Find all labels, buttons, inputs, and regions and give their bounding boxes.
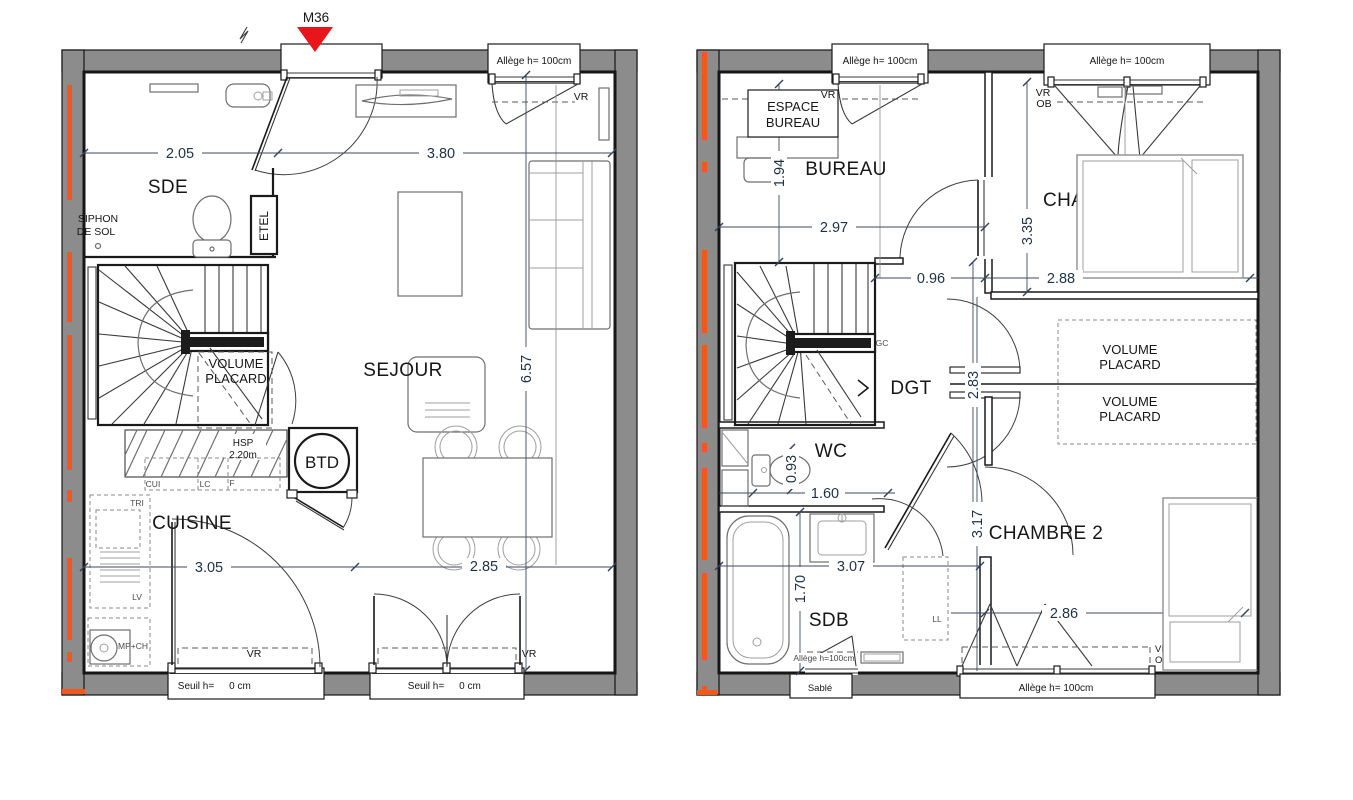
window-bottom-left	[168, 519, 324, 699]
dim-label: 2.88	[1047, 271, 1075, 287]
appliance-label-lc: LC	[200, 479, 211, 489]
placard-label: VOLUME	[209, 356, 264, 371]
appliance-label-f: F	[229, 478, 234, 488]
vr-label: VR	[247, 648, 262, 660]
seuil-label: Seuil h=	[408, 681, 445, 692]
floorplan-page: M36 Allège h= 100cm VR 2.05 3.80 6.57 SD…	[0, 0, 1353, 800]
bed-chambre2	[1163, 498, 1257, 670]
bed-chambre1	[1077, 155, 1243, 278]
placard-label: VOLUME	[1103, 394, 1158, 409]
direction-arrow	[858, 380, 868, 396]
towel-rail	[150, 84, 198, 92]
dim-label: 3.80	[427, 146, 455, 162]
btd-boiler	[255, 352, 357, 530]
ob-label: OB	[1036, 98, 1051, 110]
dim-label: 3.05	[195, 560, 223, 576]
room-label-chambre2: CHAMBRE 2	[989, 523, 1103, 544]
room-label-sdb: SDB	[809, 610, 849, 631]
dining-set	[423, 426, 552, 570]
placard-label: PLACARD	[1099, 409, 1160, 424]
floorplan-canvas: M36 Allège h= 100cm VR 2.05 3.80 6.57 SD…	[0, 0, 1353, 800]
room-label-bureau: BUREAU	[805, 159, 887, 180]
room-label-sde: SDE	[148, 177, 188, 198]
espace-bureau-label: ESPACE	[767, 99, 819, 114]
appliance-label-mpch: MP+CH	[118, 641, 148, 651]
gc-label: GC	[876, 338, 889, 348]
stairs-first	[724, 263, 875, 425]
first-floor-plan: CHAMBRE 1 VR OB 1.94 2.97 3.35 0.96 2.88	[697, 44, 1280, 698]
window-allege-label: Allège h= 100cm	[843, 56, 918, 67]
ground-floor-plan: M36 Allège h= 100cm VR 2.05 3.80 6.57 SD…	[62, 10, 637, 699]
vr-label: VR	[574, 91, 589, 103]
hsp-label: HSP	[233, 438, 254, 449]
coffee-table	[398, 192, 462, 296]
dim-label: 2.97	[820, 220, 848, 236]
radiator	[599, 88, 609, 140]
btd-label: BTD	[305, 453, 339, 472]
dim-label: 3.17	[970, 510, 986, 538]
floor-drain	[96, 244, 101, 249]
espace-bureau-label: BUREAU	[766, 115, 820, 130]
room-label-dgt: DGT	[890, 378, 931, 399]
appliance-label-tri: TRI	[130, 498, 144, 508]
vr-label: VR	[821, 89, 836, 101]
seuil-label: Seuil h=	[178, 681, 215, 692]
dim-label: 2.85	[470, 559, 498, 575]
dim-label: 0.96	[917, 271, 945, 287]
allege-label-small: Allège h=100cm	[793, 653, 854, 663]
placard-label: VOLUME	[1103, 342, 1158, 357]
dim-label: 2.86	[1050, 606, 1078, 622]
dim-label: 1.70	[793, 575, 809, 603]
placard-label: PLACARD	[205, 371, 266, 386]
toilet	[193, 196, 231, 242]
dim-label: 6.57	[519, 355, 535, 383]
etel-label: ETEL	[257, 211, 271, 241]
dim-label: 3.35	[1020, 217, 1036, 245]
siphon-label: DE SOL	[77, 226, 116, 238]
bathtub	[727, 516, 789, 664]
washer-zone	[903, 557, 948, 640]
kitchen-fittings	[88, 430, 287, 666]
vr-label: VR	[522, 648, 537, 660]
appliance-label-lv: LV	[132, 592, 142, 602]
dim-label: 1.94	[772, 159, 788, 187]
exterior-walls	[62, 50, 637, 695]
room-label-wc: WC	[815, 441, 847, 462]
dim-label: 0.93	[784, 455, 800, 483]
sejour-furniture	[356, 85, 610, 570]
dim-label: 3.07	[837, 559, 865, 575]
stairs-ground	[88, 265, 272, 428]
sofa	[529, 161, 610, 329]
dim-label: 2.05	[166, 146, 194, 162]
seuil-value: 0 cm	[229, 681, 251, 692]
dim-label: 1.60	[811, 486, 839, 502]
hsp-label: 2.20m	[229, 450, 257, 461]
room-label-sejour: SEJOUR	[363, 360, 442, 381]
room-label-cuisine: CUISINE	[152, 513, 232, 534]
entrance-marker-label: M36	[303, 10, 329, 25]
seuil-value: 0 cm	[459, 681, 481, 692]
window-allege-label: Allège h= 100cm	[497, 56, 572, 67]
window-allege-label: Allège h= 100cm	[1090, 56, 1165, 67]
window-allege-label: Allège h= 100cm	[1019, 683, 1094, 694]
placard-label: PLACARD	[1099, 357, 1160, 372]
entrance-door	[240, 27, 382, 175]
siphon-label: SIPHON	[78, 213, 118, 225]
dim-label: 2.83	[966, 371, 982, 399]
sable-label: Sablé	[808, 683, 832, 694]
appliance-label-cui: CUI	[146, 479, 161, 489]
placard-zone	[1058, 320, 1256, 444]
ll-label: LL	[932, 614, 942, 624]
window-bottom-right	[369, 594, 524, 699]
